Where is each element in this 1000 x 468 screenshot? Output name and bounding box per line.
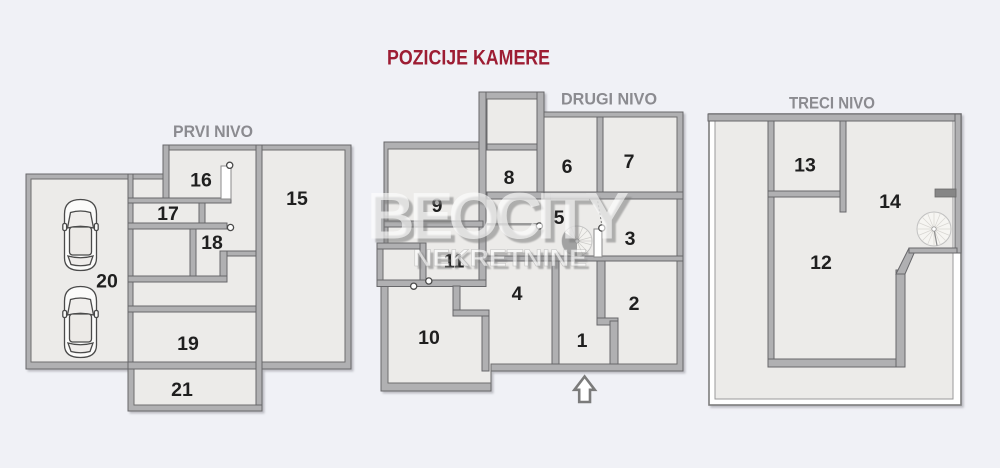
svg-text:TRECI NIVO: TRECI NIVO [789,94,875,113]
svg-text:2: 2 [629,293,640,315]
svg-text:13: 13 [794,155,816,177]
svg-text:DRUGI NIVO: DRUGI NIVO [561,90,657,109]
svg-text:18: 18 [201,232,223,254]
svg-text:POZICIJE KAMERE: POZICIJE KAMERE [387,47,550,70]
svg-text:16: 16 [190,170,212,192]
svg-text:17: 17 [157,203,179,225]
svg-text:19: 19 [177,333,199,355]
svg-text:4: 4 [512,283,523,305]
svg-text:10: 10 [418,327,440,349]
svg-text:NEKRETNINE: NEKRETNINE [413,245,587,272]
svg-text:20: 20 [96,271,118,293]
svg-text:15: 15 [286,188,308,210]
svg-text:6: 6 [562,156,573,178]
svg-text:14: 14 [879,191,901,213]
svg-text:BEOCITY: BEOCITY [367,179,629,253]
svg-text:PRVI NIVO: PRVI NIVO [173,122,253,141]
svg-text:1: 1 [577,330,588,352]
svg-text:21: 21 [171,379,193,401]
svg-text:7: 7 [624,151,635,173]
svg-text:12: 12 [810,252,832,274]
